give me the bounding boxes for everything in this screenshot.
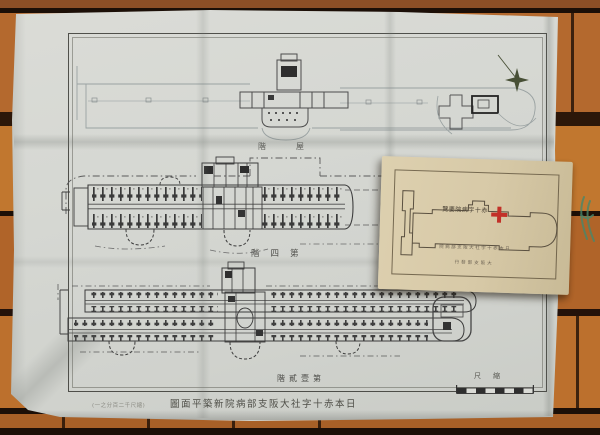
card-title: 覽要院病字十赤 xyxy=(442,204,488,214)
first-second-floor-label: 階貳壹第 xyxy=(277,375,325,383)
card-building-outline xyxy=(378,156,573,295)
card-imprint: 行發部支阪大 xyxy=(455,259,494,266)
wood-plank-joint xyxy=(576,316,579,408)
booklet-card: 覽要院病字十赤 院病部支阪大社字十赤本日 行發部支阪大 xyxy=(378,156,573,295)
wood-plank-gap xyxy=(0,428,600,435)
fourth-floor-plan xyxy=(62,157,382,253)
wood-plank-joint xyxy=(571,13,574,112)
caption-note: (一之分百二千尺縮) xyxy=(92,404,145,410)
leaf-mark xyxy=(577,195,599,243)
red-cross-icon xyxy=(491,206,507,222)
roof-floor-label: 階屋 xyxy=(258,143,334,151)
sheet-title-caption: 圖面平築新院病部支阪大社字十赤本日 xyxy=(170,400,357,410)
wood-plank xyxy=(0,0,600,8)
red-cross-horizontal-bar xyxy=(491,212,507,217)
fourth-floor-label: 階四第 xyxy=(251,250,310,259)
scale-bar xyxy=(456,385,534,394)
roof-plan xyxy=(77,54,536,140)
scale-label: 尺縮 xyxy=(474,373,512,380)
